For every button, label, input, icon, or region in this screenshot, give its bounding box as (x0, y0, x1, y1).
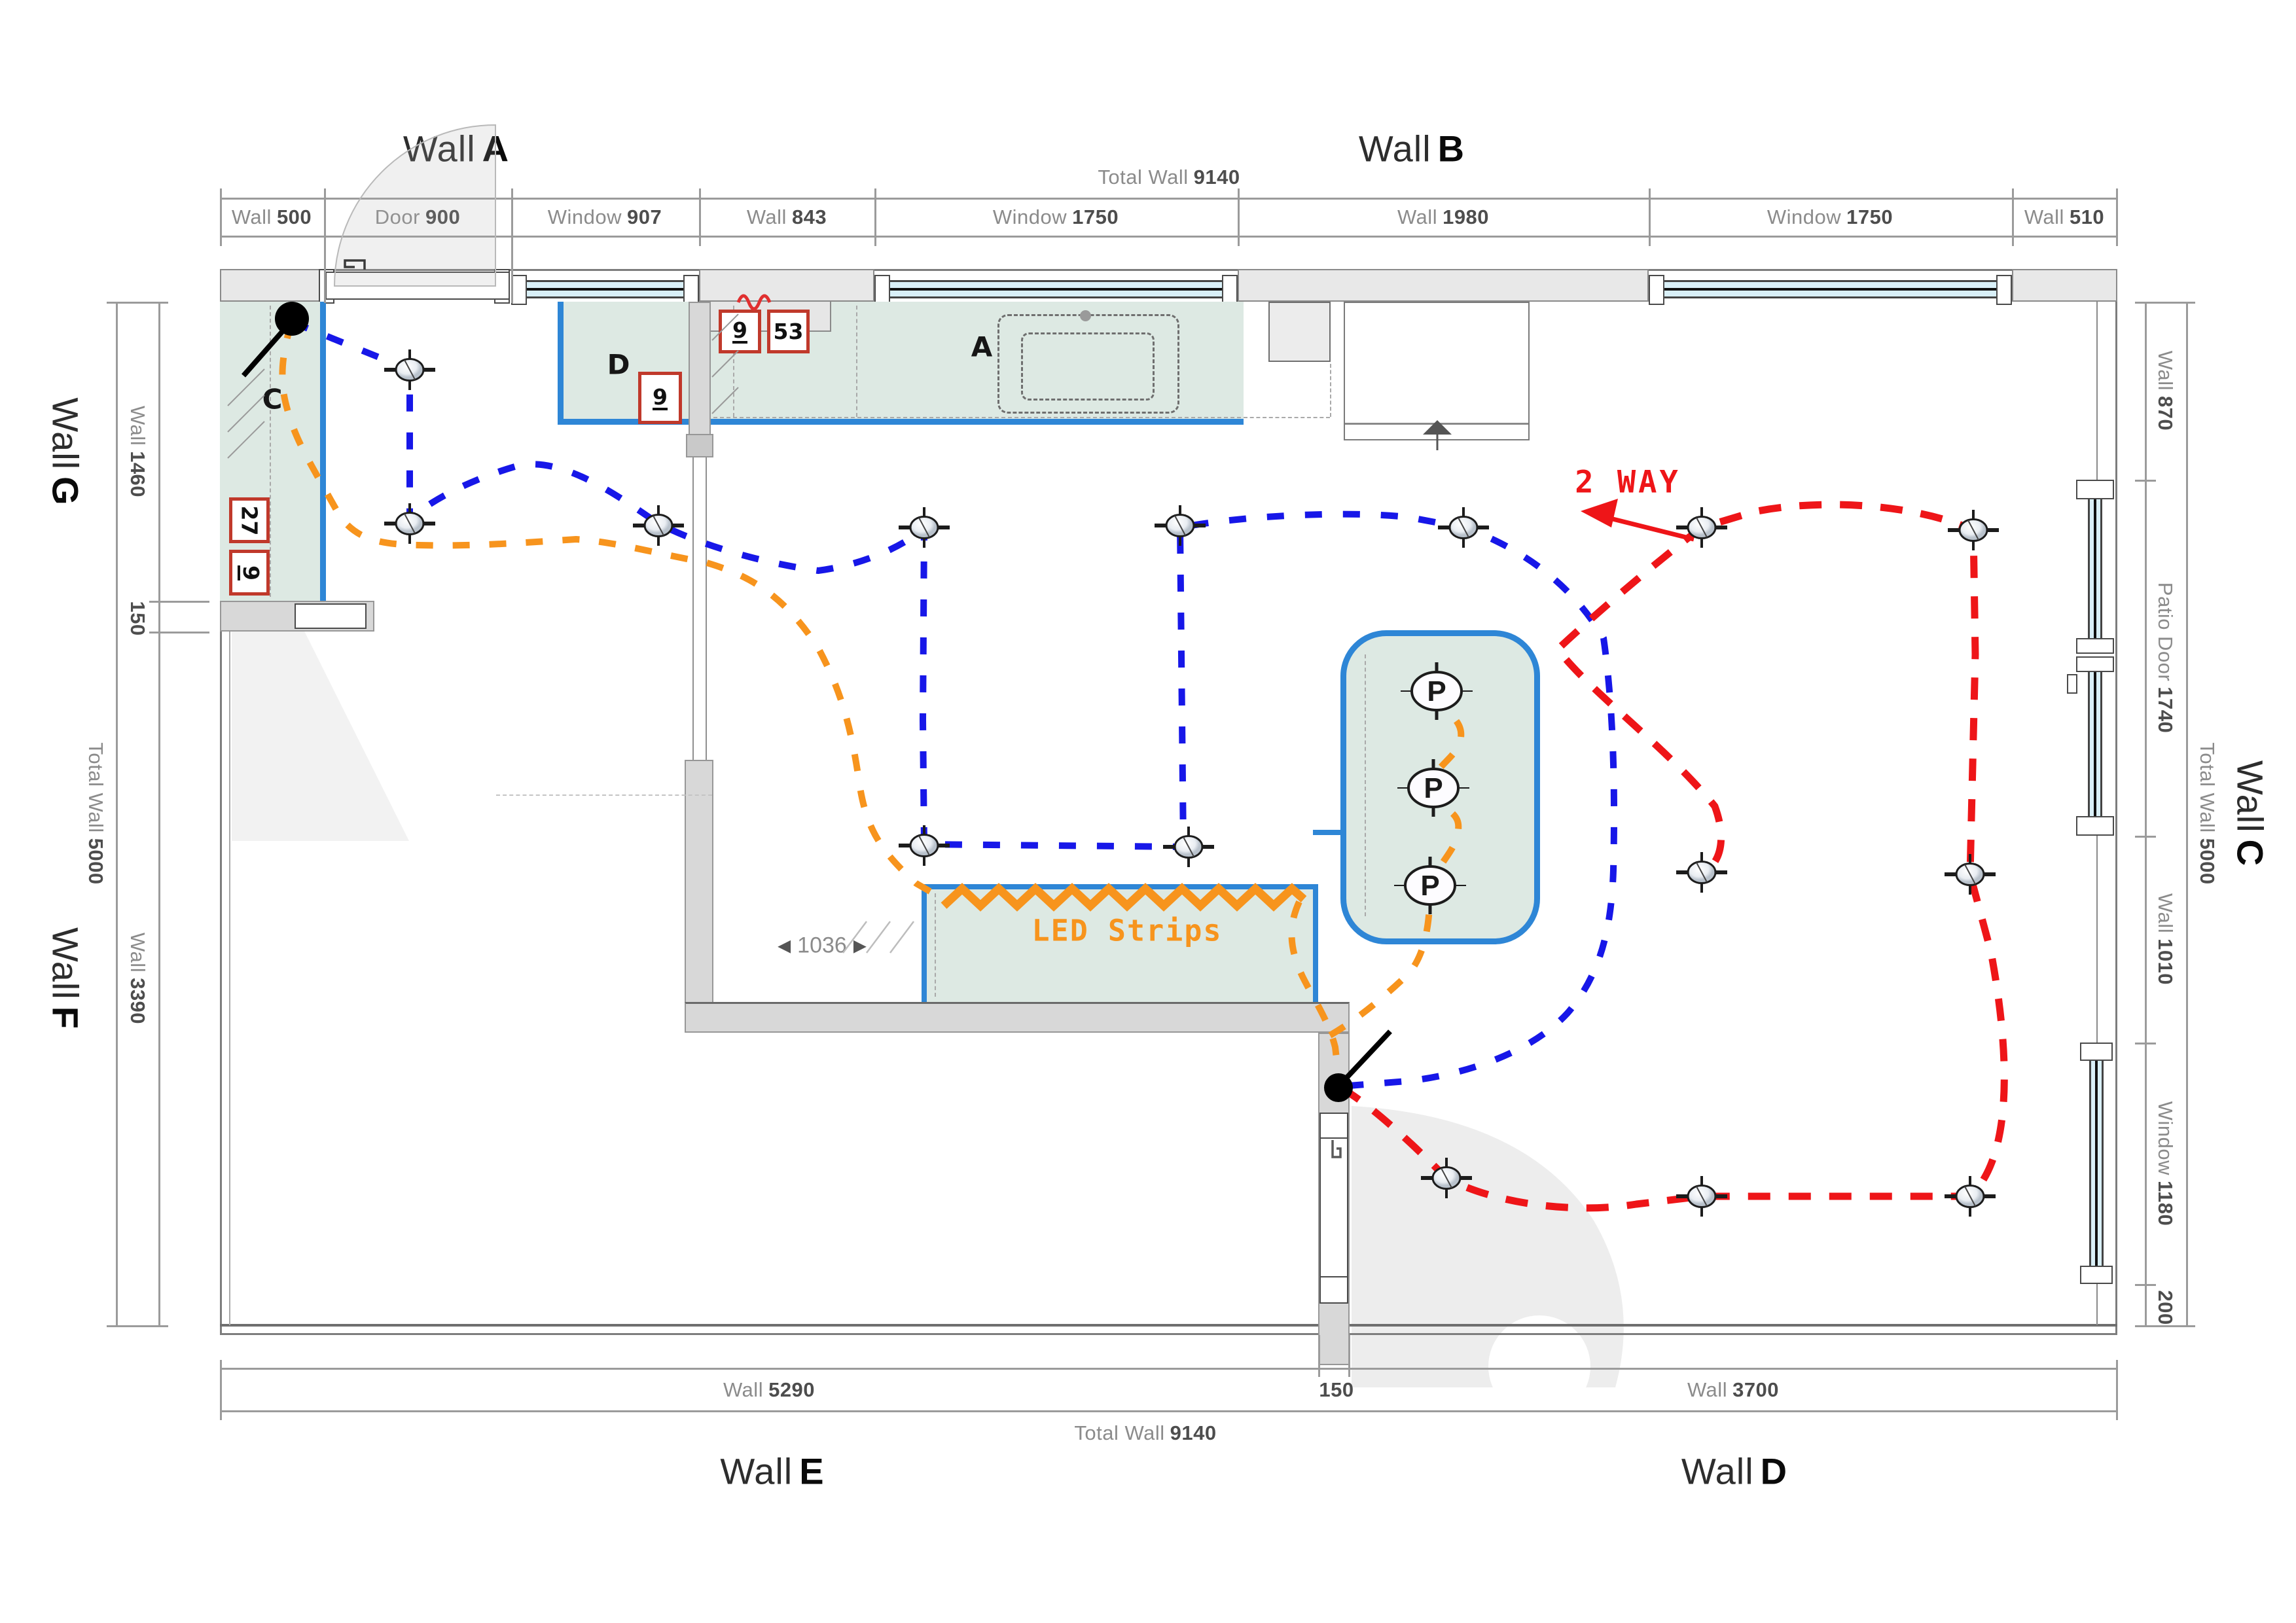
red-squiggle-mark (738, 296, 770, 309)
bottom-door-handle-icon (1333, 1140, 1340, 1157)
ceiling-light-icon (1155, 505, 1206, 546)
pendant-light-icon (1401, 662, 1473, 720)
pendant-light-icon (1397, 759, 1469, 817)
door-swing-arc (334, 125, 495, 286)
floor-plan: 27 9 9 53 9 C D A Wall500 Door900 Window… (0, 0, 2296, 1623)
route-pendant-branch (1330, 691, 1461, 1035)
circuit-overlay: P (0, 0, 2296, 1623)
route-two-way-circuit (1340, 505, 2004, 1208)
route-ceiling-circuit (292, 322, 1614, 1086)
route-led-to-switch (1292, 902, 1339, 1081)
ceiling-light-icon (384, 503, 435, 544)
ceiling-light-icon (899, 825, 950, 866)
hatch-marks-floor (843, 921, 914, 953)
ceiling-light-icon (1945, 1176, 1996, 1217)
ceiling-light-icon (1945, 854, 1996, 895)
ceiling-light-icon (1438, 507, 1489, 548)
two-way-arrow (1581, 499, 1694, 539)
pendant-lights (1394, 662, 1473, 914)
ceiling-light-icon (1676, 507, 1727, 548)
ceiling-lights (384, 349, 1999, 1217)
route-pendant-led-circuit (282, 322, 941, 898)
ceiling-light-icon (1948, 510, 1999, 550)
led-strip-zigzag (944, 889, 1304, 906)
ceiling-light-icon (1163, 827, 1214, 867)
ceiling-light-icon (1421, 1158, 1472, 1198)
ceiling-light-icon (1676, 1176, 1727, 1217)
switch-1-icon (243, 302, 309, 376)
ceiling-light-icon (899, 507, 950, 548)
hatch-marks-c (228, 369, 264, 458)
pendant-light-icon (1394, 857, 1466, 914)
ceiling-light-icon (384, 349, 435, 390)
hatch-marks-a (712, 314, 738, 414)
fridge-arrow-icon (1423, 420, 1452, 450)
